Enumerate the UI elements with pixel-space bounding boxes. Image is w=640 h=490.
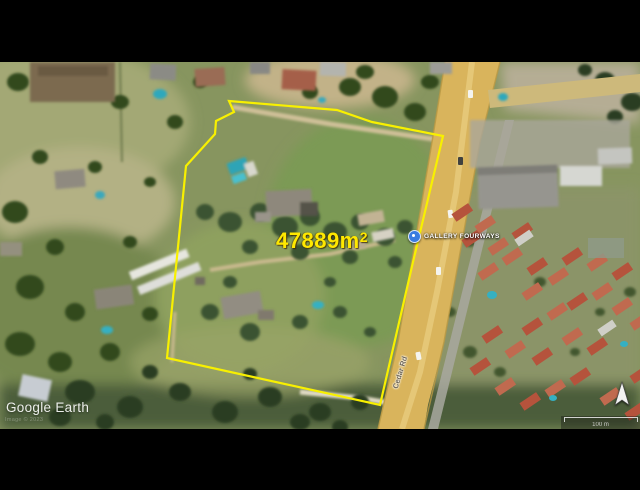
google-earth-viewport: 47889m2 GALLERY FOURWAYS Cedar Rd Google…	[0, 0, 640, 490]
place-name-label: GALLERY FOURWAYS	[424, 233, 500, 240]
google-earth-watermark: Google Earth	[6, 400, 89, 415]
place-marker[interactable]: GALLERY FOURWAYS	[408, 230, 500, 243]
imagery-attribution: Image © 2023	[5, 417, 43, 423]
area-measurement-label: 47889m2	[276, 228, 368, 254]
top-letterbox-bar	[0, 0, 640, 62]
scale-bar: 100 m	[561, 416, 640, 429]
area-superscript: 2	[360, 229, 368, 245]
scale-bar-label: 100 m	[592, 422, 609, 428]
place-pin-icon[interactable]	[408, 230, 421, 243]
bottom-letterbox-bar	[0, 429, 640, 490]
north-arrow-icon[interactable]	[613, 381, 631, 409]
area-value: 47889m	[276, 228, 360, 253]
